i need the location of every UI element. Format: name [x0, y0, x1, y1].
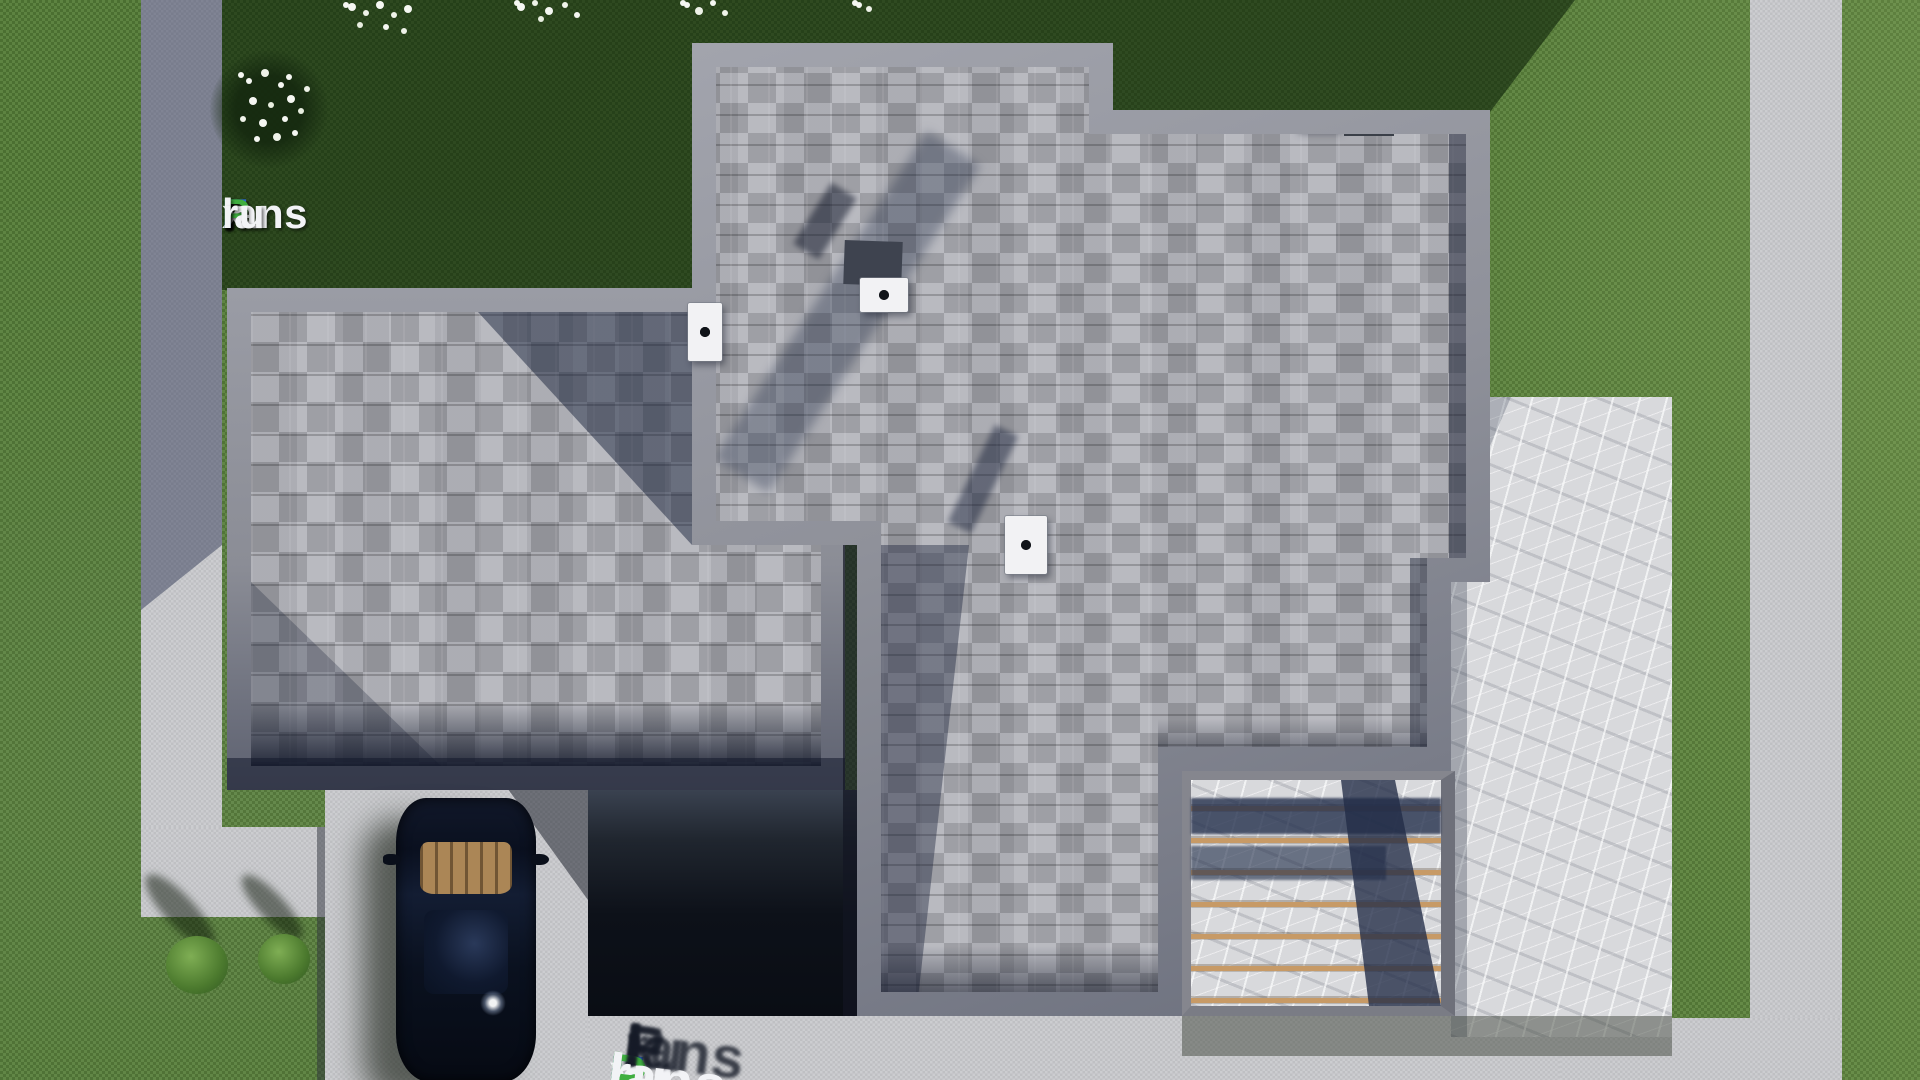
vent-hole: [700, 327, 710, 337]
left-wing-bottom-fascia: [227, 758, 845, 790]
walkway-left-shadow: [141, 0, 222, 620]
vent-hole: [879, 290, 889, 300]
flowering-tree-foliage: [210, 50, 328, 168]
garden-bush: [258, 934, 310, 984]
pergola-patio: [1182, 771, 1455, 1016]
car-roof-glass: [424, 910, 508, 994]
roof-edge-shadow: [1449, 134, 1466, 558]
aerial-render-stage: FixPlans.ru FixPlans.ru: [0, 0, 1920, 1080]
left-wing-diagonal-shadow: [478, 312, 692, 545]
roof-step-shadow: [715, 131, 981, 493]
vent-hole: [1021, 540, 1031, 550]
car-side-mirror: [383, 854, 401, 865]
parked-car: [396, 798, 536, 1080]
left-wing-eave-shadow: [251, 702, 821, 766]
garden-bush: [166, 936, 228, 994]
roof-eave-shadow: [857, 946, 1182, 1016]
brand-letter: ru: [604, 1040, 672, 1080]
roof-vent-box: [860, 278, 908, 312]
shaded-side-yard: [588, 790, 863, 1016]
roof-eave-shadow: [1158, 719, 1451, 771]
flower-patch: [514, 0, 520, 6]
roof-edge-shadow: [1410, 558, 1427, 747]
car-specular-highlight: [480, 990, 506, 1016]
flower-patch: [852, 0, 858, 6]
walkway-right: [1750, 0, 1842, 1080]
car-dashboard-area: [420, 842, 512, 894]
car-side-mirror: [531, 854, 549, 865]
flower-patch: [680, 0, 686, 6]
flowering-tree-blossoms: [238, 72, 244, 78]
roof-vent-box: [688, 303, 722, 361]
flower-patch: [343, 2, 349, 8]
roof-vent-box: [1005, 516, 1047, 574]
terrace-bottom-shadow-band: [1182, 1016, 1672, 1056]
brand-letter: ru: [222, 190, 265, 238]
driveway-edge-line: [317, 827, 325, 1080]
